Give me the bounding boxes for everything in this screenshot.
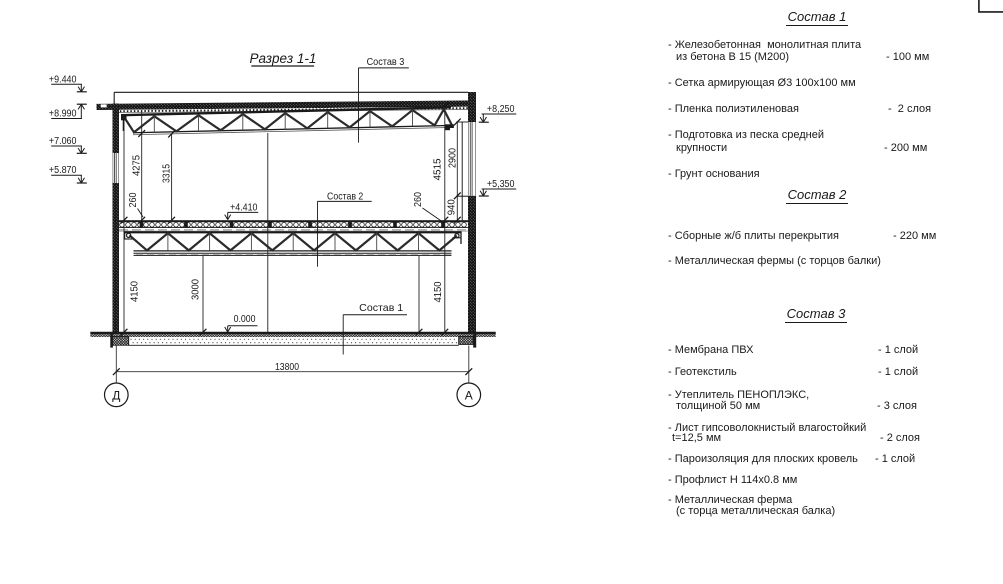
svg-text:Состав 3: Состав 3 — [367, 56, 405, 68]
svg-text:260: 260 — [413, 192, 424, 207]
svg-text:+5.870: +5.870 — [49, 165, 77, 176]
svg-text:2900: 2900 — [447, 148, 458, 168]
svg-text:3000: 3000 — [191, 279, 202, 300]
svg-text:260: 260 — [128, 192, 139, 207]
svg-text:+5,350: +5,350 — [487, 179, 515, 190]
svg-text:Разрез 1-1: Разрез 1-1 — [250, 51, 317, 66]
svg-text:4150: 4150 — [130, 281, 141, 302]
svg-text:Состав 1: Состав 1 — [359, 302, 403, 314]
svg-text:4515: 4515 — [433, 158, 444, 180]
svg-text:0.000: 0.000 — [234, 314, 256, 325]
svg-text:13800: 13800 — [275, 361, 299, 373]
svg-text:940: 940 — [447, 199, 458, 215]
svg-text:+8.990: +8.990 — [49, 108, 77, 119]
svg-text:А: А — [465, 388, 473, 402]
svg-text:Д: Д — [112, 388, 120, 402]
svg-text:+7.060: +7.060 — [49, 136, 77, 147]
svg-text:3315: 3315 — [162, 164, 173, 183]
svg-text:Состав 2: Состав 2 — [327, 190, 363, 202]
svg-text:4150: 4150 — [433, 281, 444, 302]
svg-text:+8,250: +8,250 — [487, 104, 515, 115]
svg-text:4275: 4275 — [132, 155, 143, 176]
